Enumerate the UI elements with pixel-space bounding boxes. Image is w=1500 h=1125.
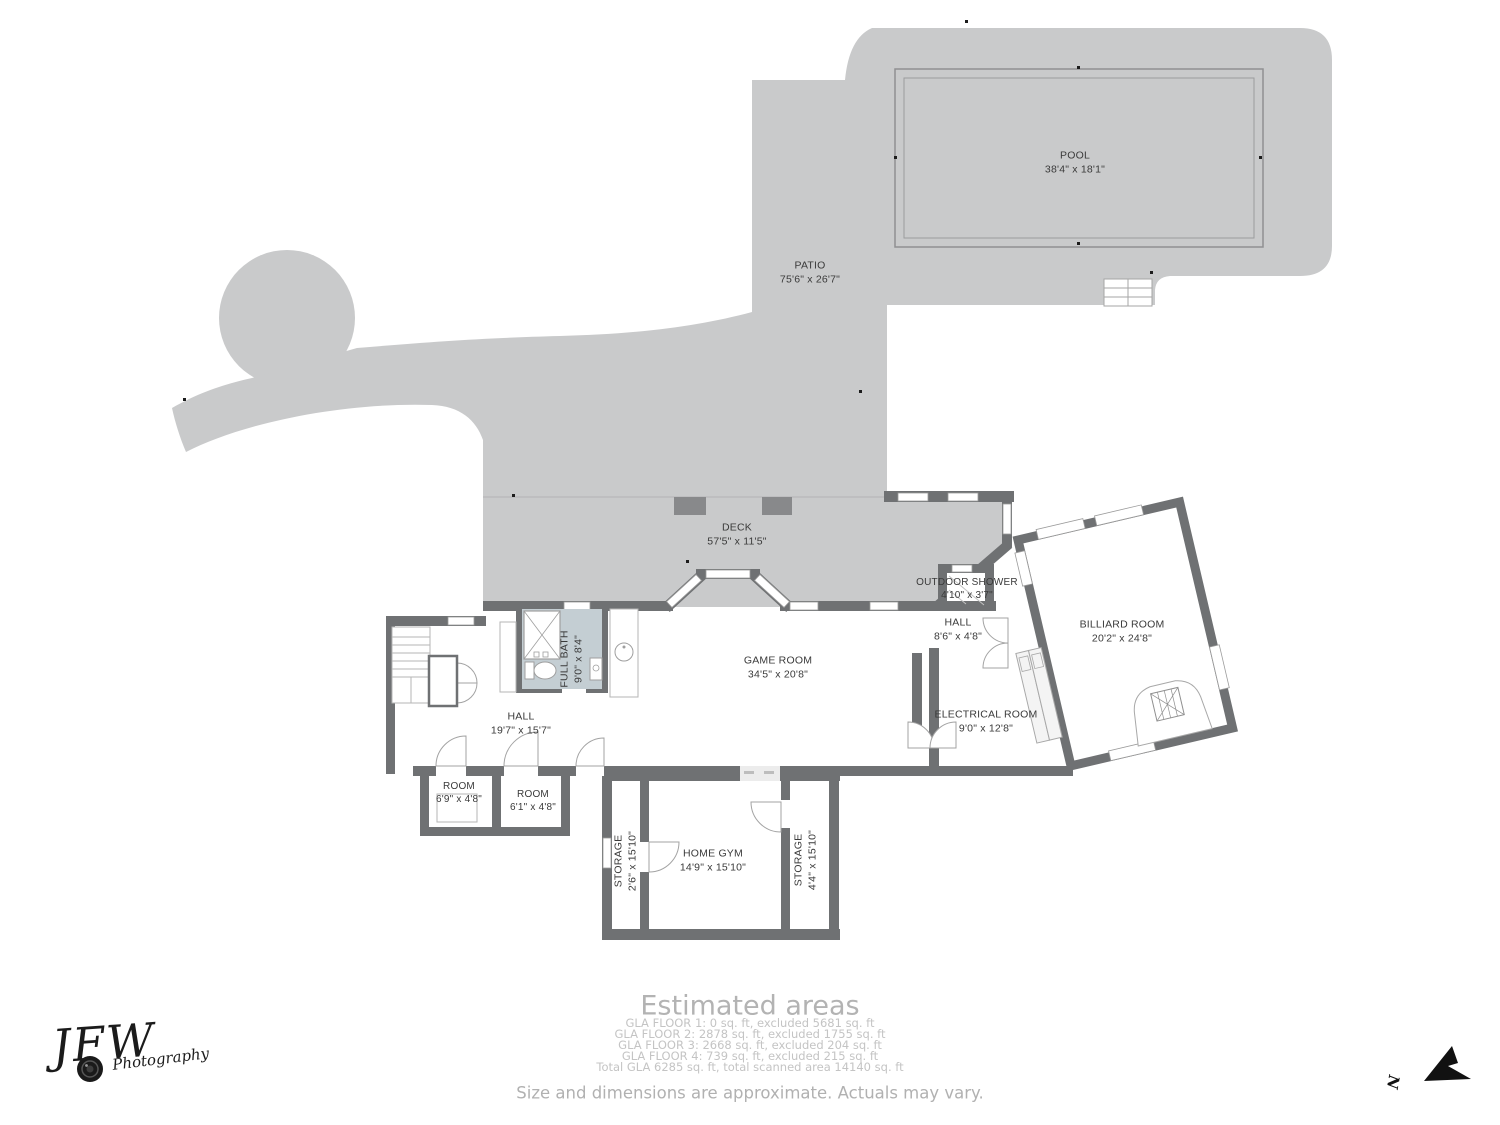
room-label-patio: PATIO 75'6" x 26'7" bbox=[780, 259, 840, 286]
room-label-billiard: BILLIARD ROOM 20'2" x 24'8" bbox=[1080, 618, 1165, 645]
vanity-sink-icon bbox=[610, 609, 638, 697]
floor-plan-page: POOL 38'4" x 18'1" PATIO 75'6" x 26'7" D… bbox=[0, 0, 1500, 1125]
room-label-hall-small: HALL 8'6" x 4'8" bbox=[934, 616, 982, 643]
room-label-storage-left: STORAGE 2'6" x 15'10" bbox=[612, 831, 639, 891]
hall-cabinet bbox=[500, 622, 516, 692]
patio-steps-icon bbox=[1104, 279, 1152, 306]
room-label-electrical: ELECTRICAL ROOM 9'0" x 12'8" bbox=[935, 708, 1038, 735]
stairs-icon bbox=[392, 627, 430, 703]
room-label-storage-right: STORAGE 4'4" x 15'10" bbox=[792, 830, 819, 890]
disclaimer-text: Size and dimensions are approximate. Act… bbox=[516, 1084, 983, 1103]
room-label-pool: POOL 38'4" x 18'1" bbox=[1045, 149, 1105, 176]
room-label-home-gym: HOME GYM 14'9" x 15'10" bbox=[680, 847, 746, 874]
closet bbox=[429, 656, 457, 706]
toilet-icon bbox=[525, 662, 556, 679]
room-label-hall-big: HALL 19'7" x 15'7" bbox=[491, 710, 551, 737]
photographer-logo: JFW Photography bbox=[40, 1014, 220, 1104]
room-label-game-room: GAME ROOM 34'5" x 20'8" bbox=[744, 654, 812, 681]
floor-plan-drawing bbox=[0, 0, 1500, 1125]
room-label-outdoor-shower: OUTDOOR SHOWER 4'10" x 3'7" bbox=[916, 576, 1018, 602]
deck-planter-icon bbox=[674, 497, 706, 515]
room-label-room-b: ROOM 6'1" x 4'8" bbox=[510, 788, 556, 814]
room-label-room-a: ROOM 6'9" x 4'8" bbox=[436, 780, 482, 806]
room-label-deck: DECK 57'5" x 11'5" bbox=[707, 521, 766, 548]
gla-total-line: Total GLA 6285 sq. ft, total scanned are… bbox=[596, 1060, 903, 1074]
sink-icon bbox=[590, 658, 602, 680]
deck-planter-icon bbox=[762, 497, 792, 515]
compass-north-label: N bbox=[1383, 1074, 1403, 1091]
north-arrow-icon bbox=[1424, 1046, 1471, 1081]
shower-icon bbox=[524, 611, 560, 659]
room-label-full-bath: FULL BATH 9'0" x 8'4" bbox=[558, 630, 585, 687]
